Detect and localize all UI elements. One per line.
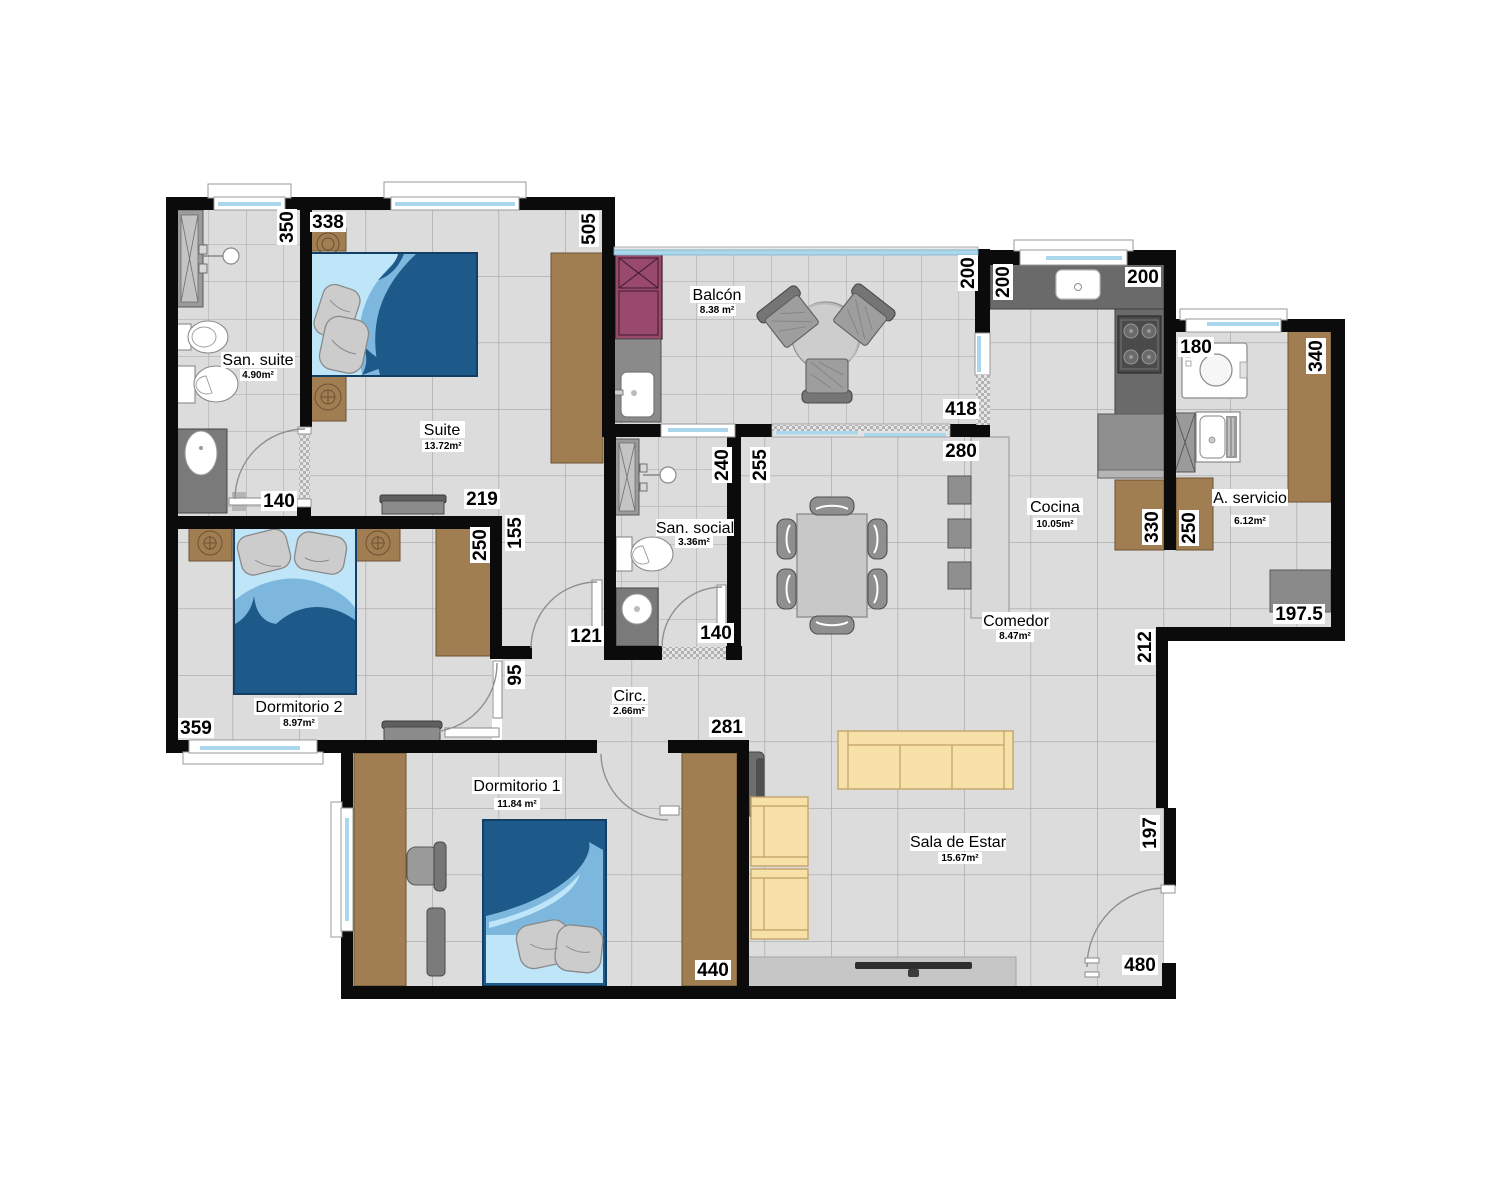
svg-text:340: 340 [1306, 340, 1327, 372]
svg-text:Suite: Suite [424, 422, 461, 439]
svg-text:Dormitorio 2: Dormitorio 2 [255, 699, 342, 716]
svg-text:212: 212 [1135, 631, 1156, 663]
svg-text:281: 281 [711, 717, 743, 738]
svg-text:197: 197 [1140, 817, 1161, 849]
svg-text:359: 359 [180, 718, 212, 739]
svg-text:8.38 m²: 8.38 m² [700, 305, 735, 316]
svg-text:418: 418 [945, 399, 977, 420]
svg-text:330: 330 [1142, 511, 1163, 543]
svg-text:480: 480 [1124, 955, 1156, 976]
svg-text:4.90m²: 4.90m² [242, 370, 274, 381]
svg-text:Dormitorio 1: Dormitorio 1 [473, 778, 560, 795]
svg-text:95: 95 [505, 664, 526, 686]
svg-text:155: 155 [505, 517, 526, 549]
svg-text:140: 140 [263, 491, 295, 512]
svg-text:A. servicio: A. servicio [1213, 490, 1287, 507]
svg-text:10.05m²: 10.05m² [1036, 519, 1074, 530]
svg-text:13.72m²: 13.72m² [424, 441, 462, 452]
svg-text:180: 180 [1180, 337, 1212, 358]
svg-text:2.66m²: 2.66m² [613, 706, 645, 717]
svg-text:200: 200 [958, 257, 979, 289]
svg-text:505: 505 [579, 213, 600, 245]
svg-text:6.12m²: 6.12m² [1234, 516, 1266, 527]
svg-text:197.5: 197.5 [1275, 604, 1323, 625]
svg-text:255: 255 [750, 449, 771, 481]
svg-text:11.84 m²: 11.84 m² [497, 799, 537, 810]
svg-text:3.36m²: 3.36m² [678, 537, 710, 548]
svg-text:Cocina: Cocina [1030, 499, 1080, 516]
svg-text:250: 250 [470, 529, 491, 561]
svg-text:338: 338 [312, 212, 344, 233]
svg-text:140: 140 [700, 623, 732, 644]
svg-text:280: 280 [945, 441, 977, 462]
svg-text:440: 440 [697, 960, 729, 981]
svg-text:Sala de Estar: Sala de Estar [910, 834, 1007, 851]
svg-text:121: 121 [570, 626, 602, 647]
svg-text:240: 240 [712, 449, 733, 481]
svg-text:8.47m²: 8.47m² [999, 631, 1031, 642]
svg-text:San. social: San. social [656, 520, 734, 537]
svg-text:250: 250 [1179, 512, 1200, 544]
svg-text:219: 219 [466, 489, 498, 510]
svg-text:200: 200 [1127, 267, 1159, 288]
svg-text:Circ.: Circ. [614, 688, 647, 705]
svg-text:8.97m²: 8.97m² [283, 718, 315, 729]
svg-text:350: 350 [277, 211, 298, 243]
svg-text:San. suite: San. suite [222, 352, 293, 369]
svg-text:Comedor: Comedor [983, 613, 1049, 630]
svg-text:Balcón: Balcón [693, 287, 742, 304]
svg-text:200: 200 [993, 266, 1014, 298]
svg-text:15.67m²: 15.67m² [941, 853, 979, 864]
